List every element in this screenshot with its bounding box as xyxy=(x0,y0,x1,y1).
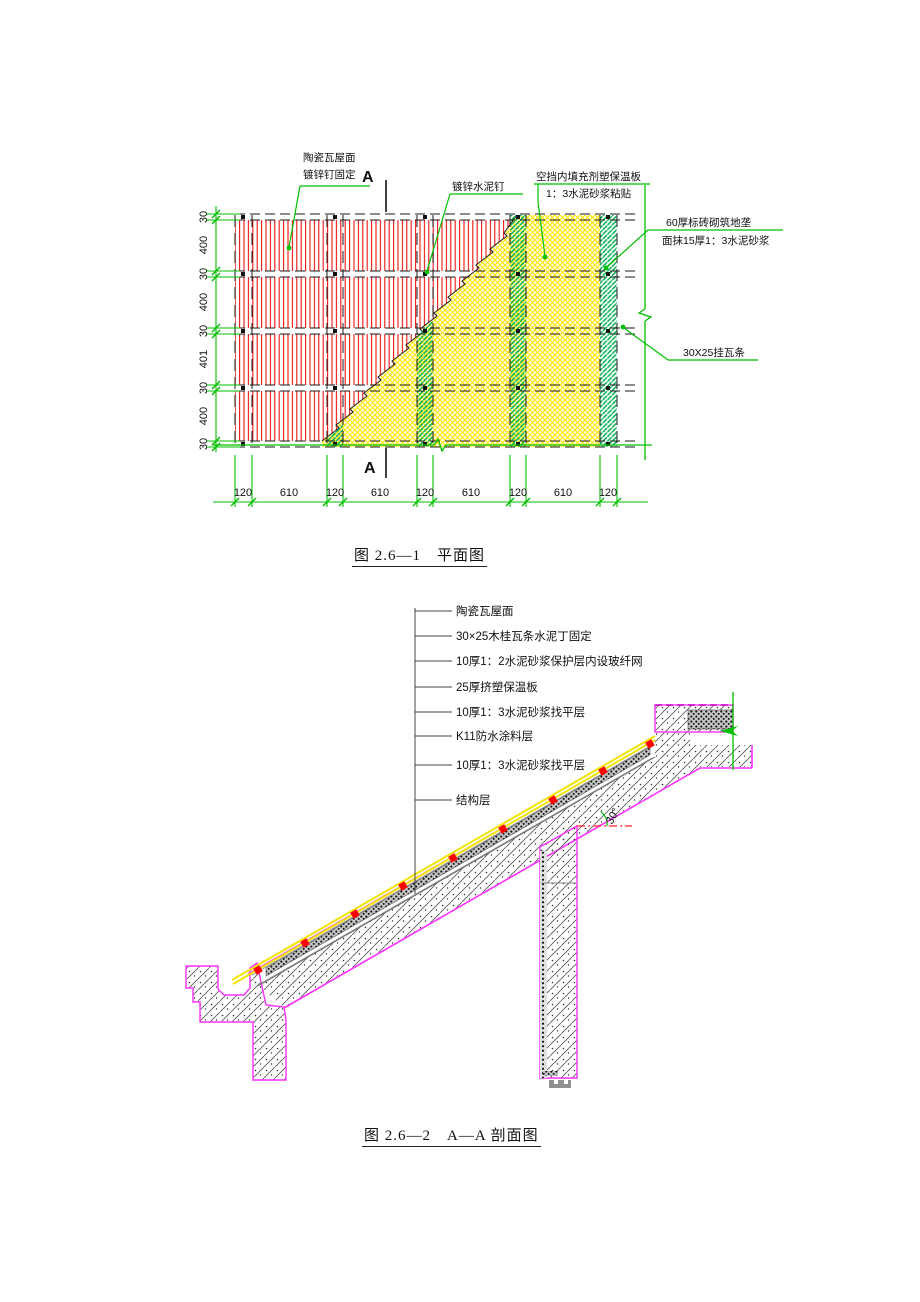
dim-label: 120 xyxy=(416,487,434,499)
insulation-band xyxy=(266,747,650,976)
slab-underside-outline xyxy=(284,745,752,1008)
dim-label: 610 xyxy=(462,487,480,499)
bottom-dimension: 120 610 120 610 120 610 120 610 120 xyxy=(213,455,648,507)
support-wall xyxy=(540,826,577,1088)
section-marker-letter: A xyxy=(364,460,376,477)
slab-top-line xyxy=(258,757,655,986)
dim-label: 400 xyxy=(198,293,210,311)
dim-label: 30 xyxy=(198,211,210,223)
wall-insulation-strip xyxy=(540,851,547,1078)
layer-label: K11防水涂料层 xyxy=(456,729,533,743)
layer-label: 30×25木桂瓦条水泥丁固定 xyxy=(456,629,592,643)
dim-label: 401 xyxy=(198,350,210,368)
section-view-figure: 30° 陶瓷瓦屋面 30×25木桂瓦条水泥丁固定 10厚1：2水泥砂浆保护层内设… xyxy=(186,604,752,1088)
callout-tile-roof: 陶瓷瓦屋面 xyxy=(303,151,356,164)
dim-label: 30 xyxy=(198,325,210,337)
structure-slab xyxy=(258,732,752,1007)
technical-drawing-canvas: 30 400 30 400 30 401 30 400 30 xyxy=(0,0,920,1302)
left-dimension-labels: 30 400 30 400 30 401 30 400 30 xyxy=(198,211,210,450)
section-marker-letter: A xyxy=(362,169,374,186)
plan-view-figure: 30 400 30 400 30 401 30 400 30 xyxy=(198,151,783,507)
dim-label: 30 xyxy=(198,382,210,394)
dim-label: 610 xyxy=(280,487,298,499)
dim-label: 610 xyxy=(554,487,572,499)
dim-label: 120 xyxy=(599,487,617,499)
dim-label: 120 xyxy=(234,487,252,499)
dim-label: 400 xyxy=(198,236,210,254)
layer-label: 10厚1：2水泥砂浆保护层内设玻纤网 xyxy=(456,654,643,668)
dim-label: 30 xyxy=(198,438,210,450)
callout-insulation: 空挡内填充剂塑保温板 xyxy=(536,170,641,183)
document-page: { "figure1": { "caption": "图 2.6—1 平面图",… xyxy=(0,0,920,1302)
figure1-caption: 图 2.6—1 平面图 xyxy=(352,544,487,567)
layer-label: 结构层 xyxy=(456,793,491,807)
layer-label: 10厚1：3水泥砂浆找平层 xyxy=(456,758,585,772)
callout-brick-ridge: 60厚标砖砌筑地垄 xyxy=(666,216,752,229)
callout-brick-ridge: 面抹15厚1：3水泥砂浆 xyxy=(662,234,770,247)
callout-insulation: 1：3水泥砂浆粘贴 xyxy=(546,187,632,200)
layer-label: 25厚挤塑保温板 xyxy=(456,680,538,694)
callout-cement-nail: 镀锌水泥钉 xyxy=(452,180,505,193)
layer-label: 陶瓷瓦屋面 xyxy=(456,604,514,618)
section-marker-bottom: A xyxy=(364,448,386,478)
dim-label: 400 xyxy=(198,407,210,425)
callout-tile-roof: 镀锌钉固定 xyxy=(303,168,356,181)
roof-layer-stack xyxy=(232,736,655,985)
section-marker-top: A xyxy=(362,169,386,212)
dim-label: 610 xyxy=(371,487,389,499)
dim-label: 30 xyxy=(198,268,210,280)
wall-break-symbol xyxy=(549,1080,571,1088)
tile-surface-line xyxy=(232,736,655,980)
layer-label: 10厚1：3水泥砂浆找平层 xyxy=(456,705,585,719)
bottom-dimension-labels: 120 610 120 610 120 610 120 610 120 xyxy=(234,487,617,499)
dim-label: 120 xyxy=(509,487,527,499)
figure2-caption: 图 2.6—2 A—A 剖面图 xyxy=(362,1124,541,1147)
callout-batten: 30X25挂瓦条 xyxy=(683,346,745,359)
left-dimension: 30 400 30 400 30 401 30 400 30 xyxy=(198,206,240,452)
dim-label: 120 xyxy=(326,487,344,499)
